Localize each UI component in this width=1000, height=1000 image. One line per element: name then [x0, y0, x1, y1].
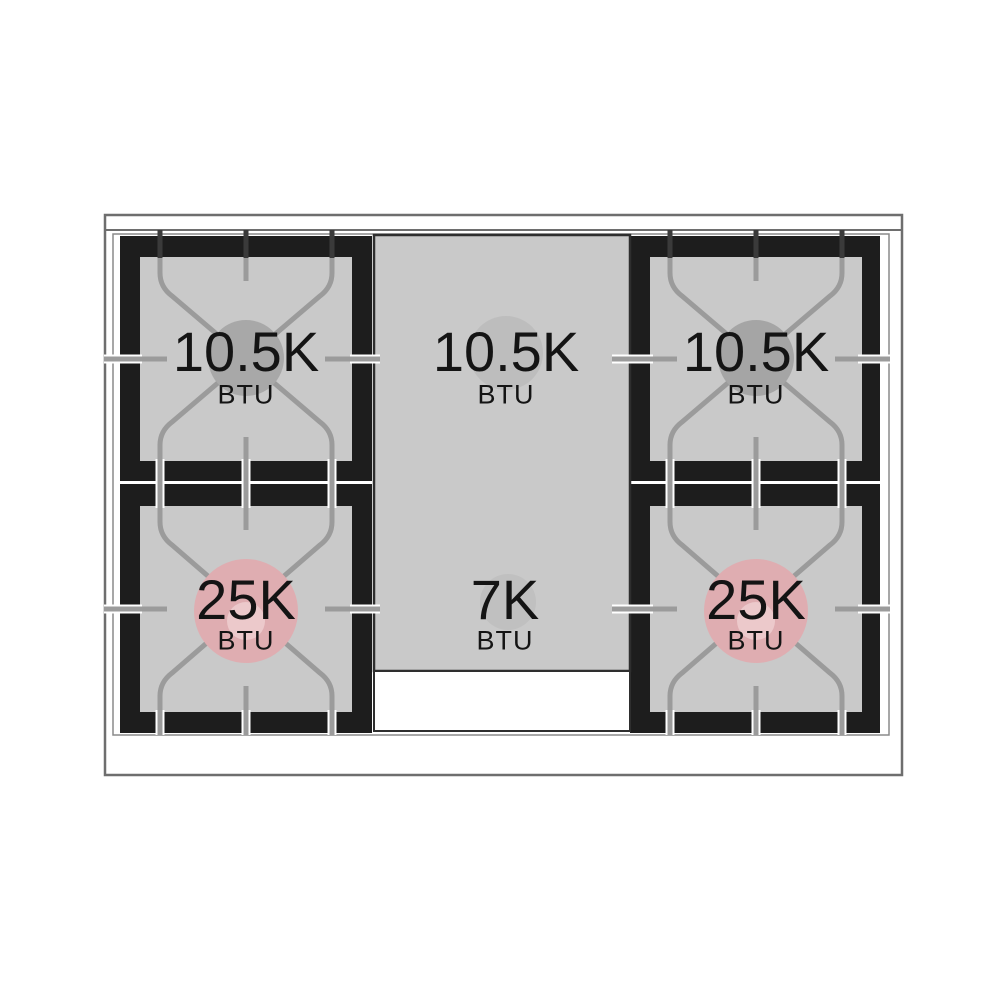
btu-value: 10.5K: [433, 324, 579, 380]
btu-value: 7K: [471, 572, 540, 628]
btu-label-bottom-right: 25K: [706, 572, 806, 628]
btu-unit: BTU: [477, 628, 534, 655]
btu-label-top-left: 10.5K: [173, 324, 319, 380]
btu-value: 10.5K: [683, 324, 829, 380]
btu-unit-bottom-center: BTU: [477, 628, 534, 655]
btu-unit-top-left: BTU: [218, 382, 275, 409]
center-front-tray: [374, 671, 630, 731]
cooktop-btu-diagram: 10.5K BTU 10.5K BTU 10.5K BTU 25K BTU 7K…: [0, 0, 1000, 1000]
btu-unit: BTU: [728, 628, 785, 655]
btu-unit: BTU: [728, 382, 785, 409]
btu-value: 25K: [196, 572, 296, 628]
btu-label-top-center: 10.5K: [433, 324, 579, 380]
btu-value: 10.5K: [173, 324, 319, 380]
btu-label-bottom-center: 7K: [471, 572, 540, 628]
btu-unit-top-right: BTU: [728, 382, 785, 409]
btu-unit-bottom-right: BTU: [728, 628, 785, 655]
btu-unit-bottom-left: BTU: [218, 628, 275, 655]
cooktop-graphic: [0, 0, 1000, 1000]
btu-unit: BTU: [478, 382, 535, 409]
btu-unit: BTU: [218, 628, 275, 655]
btu-label-top-right: 10.5K: [683, 324, 829, 380]
btu-unit: BTU: [218, 382, 275, 409]
btu-label-bottom-left: 25K: [196, 572, 296, 628]
btu-unit-top-center: BTU: [478, 382, 535, 409]
btu-value: 25K: [706, 572, 806, 628]
